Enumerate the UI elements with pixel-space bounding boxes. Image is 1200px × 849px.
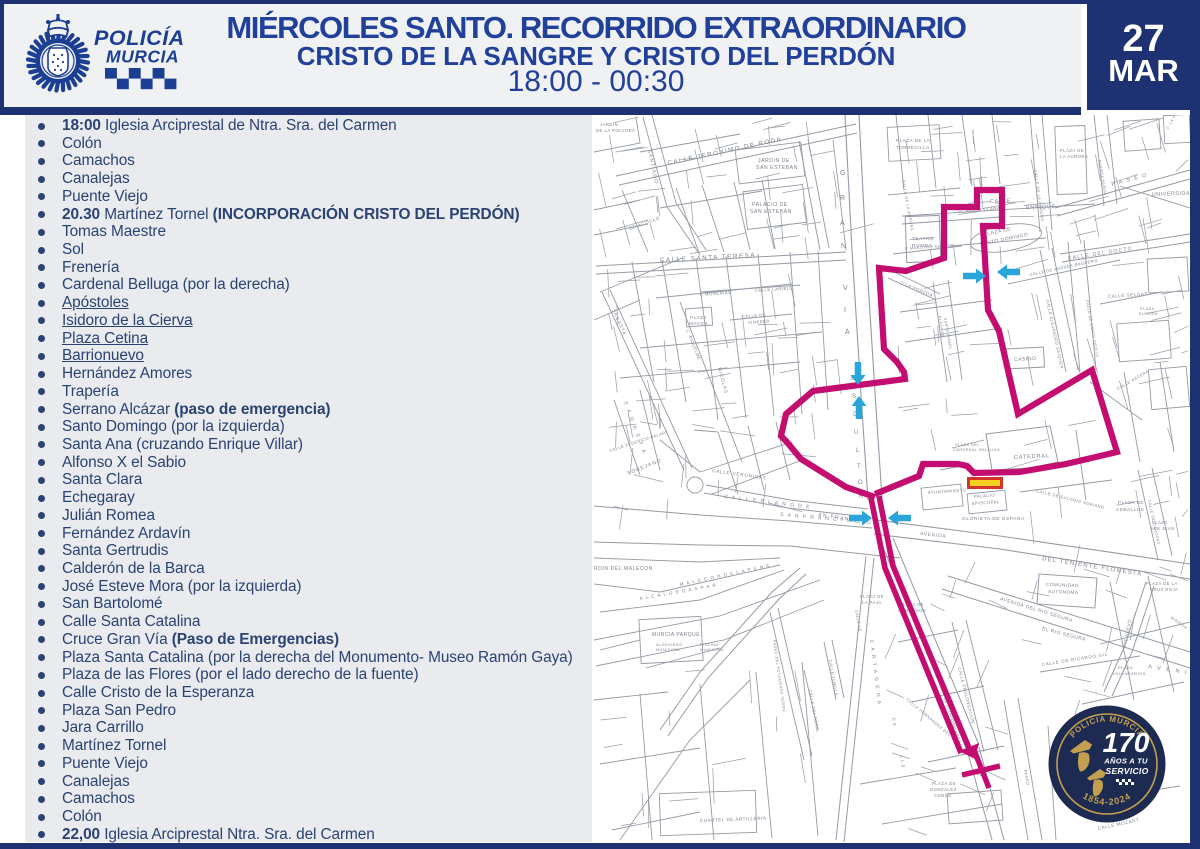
svg-text:V: V	[843, 285, 848, 292]
svg-text:170: 170	[1103, 727, 1150, 758]
svg-text:MURCIA PARQUE: MURCIA PARQUE	[652, 632, 700, 638]
svg-text:PLAZA DE LA: PLAZA DE LA	[1146, 581, 1178, 586]
svg-text:T: T	[857, 464, 861, 470]
svg-text:CONDE: CONDE	[934, 793, 952, 798]
svg-text:PALACIO DE: PALACIO DE	[752, 202, 788, 208]
svg-text:ENRIQUE: ENRIQUE	[1026, 204, 1056, 211]
svg-text:S: S	[852, 394, 857, 400]
svg-text:GLORIETA DE ESPAÑA: GLORIETA DE ESPAÑA	[962, 515, 1025, 522]
svg-text:TEATRO: TEATRO	[912, 236, 934, 242]
svg-text:PLAZA DE: PLAZA DE	[860, 594, 884, 599]
svg-text:O: O	[858, 480, 863, 486]
svg-text:LA AURORA: LA AURORA	[1060, 154, 1088, 159]
svg-text:PISCINA: PISCINA	[700, 643, 719, 647]
svg-text:GONZALEZ: GONZALEZ	[930, 787, 957, 792]
svg-text:MUNICIPAL: MUNICIPAL	[656, 648, 681, 652]
svg-text:PLAZA DE: PLAZA DE	[932, 781, 956, 786]
svg-text:U: U	[854, 430, 859, 436]
svg-text:JARDIN DE: JARDIN DE	[758, 158, 790, 164]
svg-text:MUNICIPAL: MUNICIPAL	[700, 648, 725, 652]
svg-text:LA PAJA: LA PAJA	[862, 600, 882, 605]
svg-text:N: N	[841, 243, 847, 250]
svg-text:G: G	[840, 170, 845, 177]
svg-text:I: I	[844, 307, 846, 314]
svg-text:EUROPA: EUROPA	[1139, 312, 1158, 316]
svg-text:TORRECILLA: TORRECILLA	[896, 145, 930, 150]
svg-text:ROMEA: ROMEA	[912, 243, 932, 249]
svg-text:SERVICIO: SERVICIO	[1105, 766, 1148, 776]
svg-text:VOLUNTARIOS: VOLUNTARIOS	[1112, 671, 1146, 676]
svg-text:SAN ESTEBAN: SAN ESTEBAN	[750, 209, 792, 215]
svg-text:SAN JUAN: SAN JUAN	[1150, 526, 1175, 531]
svg-text:A: A	[845, 329, 850, 336]
svg-text:ALGECIRAS: ALGECIRAS	[656, 643, 682, 647]
svg-text:CARDENAL BELLUGA: CARDENAL BELLUGA	[953, 448, 1000, 452]
svg-text:L: L	[856, 448, 860, 454]
svg-text:PLAZA: PLAZA	[1152, 520, 1168, 525]
svg-text:R: R	[840, 195, 846, 202]
svg-text:CASINO: CASINO	[1014, 356, 1037, 363]
svg-text:PLAZA: PLAZA	[1140, 307, 1155, 311]
svg-text:PLAZA DE LA: PLAZA DE LA	[896, 138, 931, 143]
svg-text:PLAZA: PLAZA	[690, 315, 707, 320]
svg-text:PLAZA: PLAZA	[1118, 665, 1133, 670]
svg-text:PLAZA DEL: PLAZA DEL	[955, 443, 980, 447]
svg-text:A: A	[840, 220, 845, 227]
svg-text:DE LA POLVORA: DE LA POLVORA	[596, 128, 635, 133]
svg-text:SAN ESTEBAN: SAN ESTEBAN	[756, 165, 798, 171]
svg-text:CEBALLOS: CEBALLOS	[1116, 507, 1144, 512]
svg-text:PLAZA DE: PLAZA DE	[1118, 500, 1144, 505]
svg-text:AÑOS A TU: AÑOS A TU	[1103, 757, 1148, 766]
svg-text:MAYOR: MAYOR	[689, 321, 708, 326]
svg-text:CRUZ ROJA: CRUZ ROJA	[1150, 587, 1178, 592]
svg-text:PLAZA DE: PLAZA DE	[1060, 148, 1084, 153]
svg-text:RDIN DEL MALECON: RDIN DEL MALECON	[594, 566, 653, 572]
svg-text:JARDIN: JARDIN	[600, 122, 618, 127]
